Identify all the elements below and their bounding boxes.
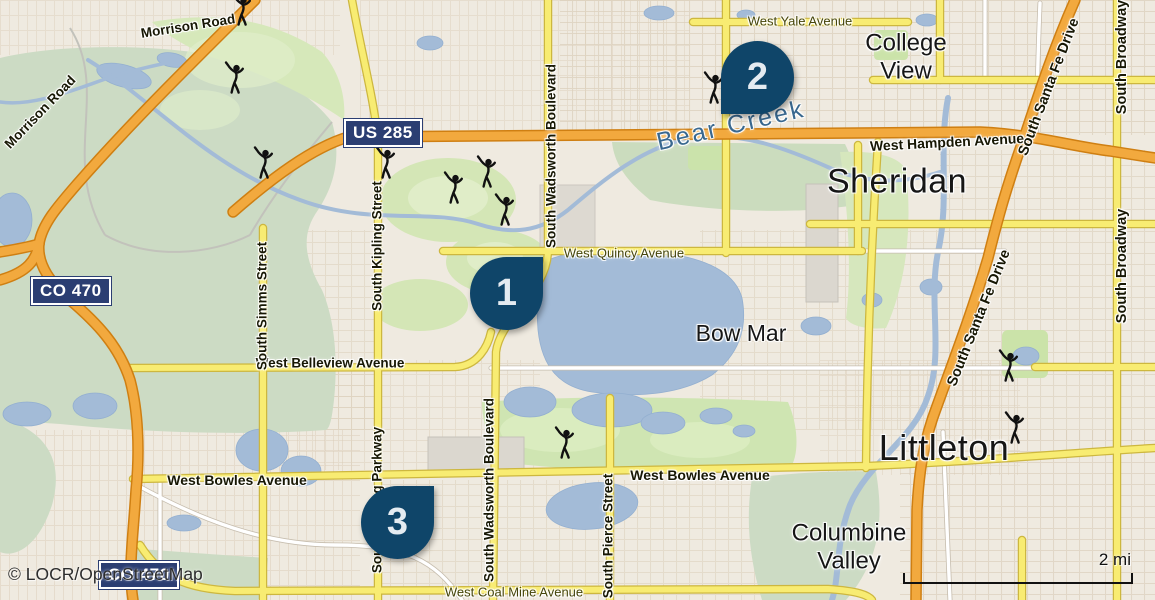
highway-shield-us285: US 285: [344, 119, 422, 147]
map-marker-3[interactable]: 3: [361, 486, 434, 559]
map-canvas[interactable]: [0, 0, 1155, 600]
map-viewport[interactable]: Sheridan Littleton College View Bow Mar …: [0, 0, 1155, 600]
map-attribution[interactable]: © LOCR/OpenStreetMap: [8, 564, 203, 585]
map-marker-2[interactable]: 2: [721, 41, 794, 114]
marker-number: 3: [387, 501, 408, 544]
map-marker-1[interactable]: 1: [470, 257, 543, 330]
highway-shield-co470-west: CO 470: [31, 277, 111, 305]
marker-number: 2: [747, 56, 768, 99]
marker-number: 1: [496, 272, 517, 315]
